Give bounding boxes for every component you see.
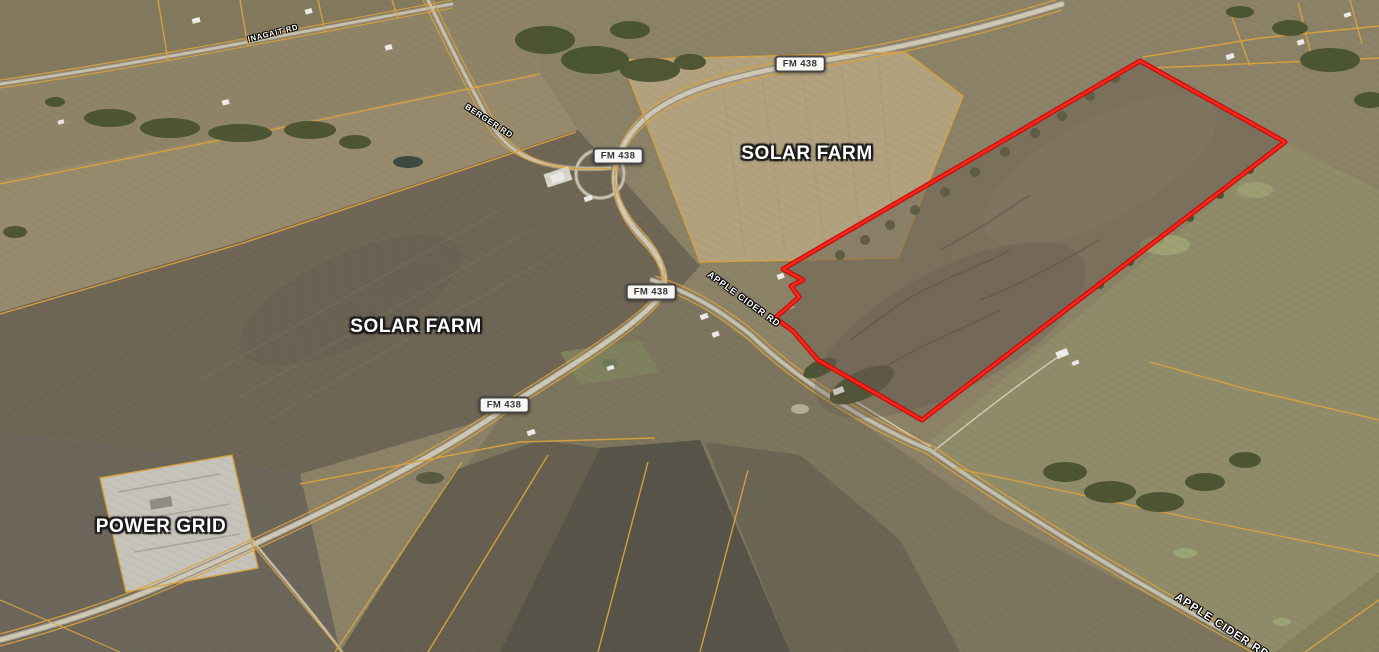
parcel-marker-dot — [767, 315, 773, 321]
aerial-parcel-map[interactable]: SOLAR FARM SOLAR FARM POWER GRID FM 438 … — [0, 0, 1379, 652]
satellite-imagery — [0, 0, 1379, 652]
